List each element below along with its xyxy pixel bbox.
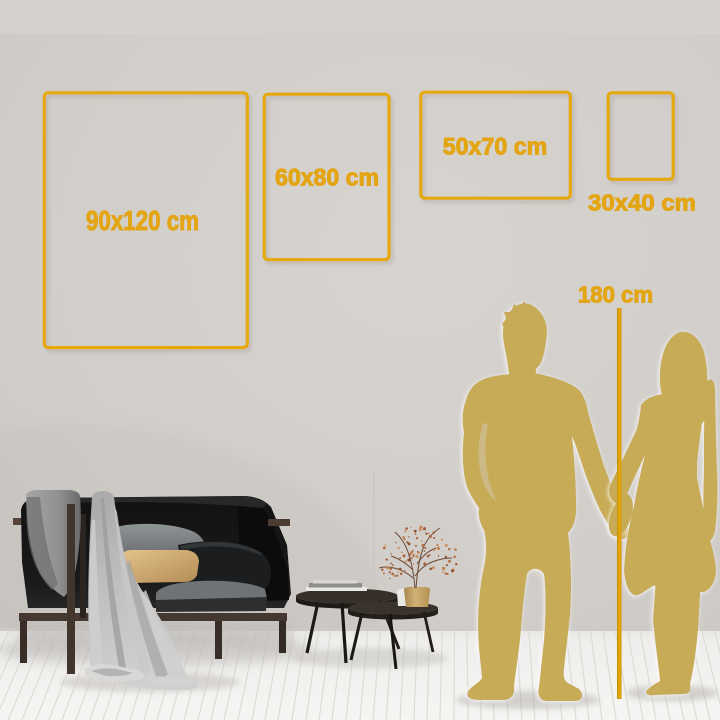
svg-text:60x80 cm: 60x80 cm [275,165,379,192]
svg-text:30x40 cm: 30x40 cm [588,189,696,215]
svg-text:180 cm: 180 cm [578,281,653,307]
svg-text:50x70 cm: 50x70 cm [443,134,548,161]
svg-text:90x120 cm: 90x120 cm [86,205,199,236]
